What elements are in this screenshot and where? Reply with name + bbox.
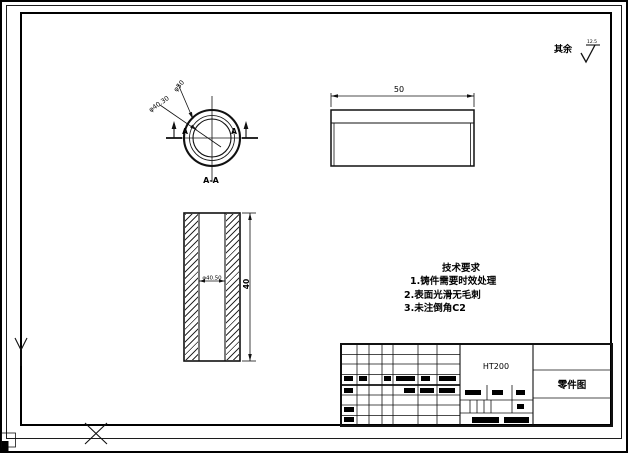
drawing-name: 零件图 bbox=[557, 379, 587, 391]
cutting-plane-right bbox=[242, 121, 258, 138]
width-dimension-label: 50 bbox=[394, 85, 404, 94]
roughness-check-icon bbox=[581, 45, 595, 62]
left-y-mark bbox=[15, 338, 27, 366]
bore-dimension: φ40.50 bbox=[199, 276, 225, 283]
front-view: φ40.50 40 bbox=[184, 213, 256, 361]
length-dimension: 40 bbox=[242, 213, 256, 361]
surface-roughness-note: 其余 12.5 bbox=[554, 39, 600, 62]
sheet-centering-marks bbox=[2, 338, 108, 451]
cut-arrowhead-right bbox=[244, 121, 249, 129]
roughness-value: 12.5 bbox=[587, 39, 597, 45]
inner-diameter-label: φ40.30 bbox=[147, 94, 170, 114]
rest-surfaces-label: 其余 bbox=[554, 43, 573, 55]
title-block-right: 零件图 bbox=[533, 370, 612, 398]
cutting-plane-left bbox=[166, 121, 182, 138]
outer-diameter-label: φ50 bbox=[172, 79, 186, 94]
front-view-outline bbox=[184, 213, 240, 361]
tech-requirements-title: 技术要求 bbox=[442, 262, 481, 274]
side-view-outline bbox=[331, 110, 474, 166]
drawing-linework: φ50 φ40.30 A A A-A 50 bbox=[0, 0, 628, 453]
bore-dimension-label: φ40.50 bbox=[202, 276, 222, 282]
material-value: HT200 bbox=[483, 362, 509, 371]
title-block: HT200 零件图 bbox=[341, 344, 612, 426]
tech-requirement-2: 2.表面光滑无毛刺 bbox=[404, 289, 481, 301]
cut-letter-right: A bbox=[231, 127, 237, 136]
corner-mark-fill bbox=[2, 441, 9, 451]
length-arrowhead-bottom bbox=[248, 354, 252, 361]
section-view: φ50 φ40.30 A A A-A bbox=[147, 79, 258, 185]
length-arrowhead-top bbox=[248, 213, 252, 220]
dim-arrowhead-right bbox=[467, 94, 474, 98]
title-block-left-grid bbox=[341, 344, 460, 426]
side-view-width-dimension: 50 bbox=[331, 85, 474, 107]
length-dimension-label: 40 bbox=[242, 279, 251, 289]
leader-arrowhead-outer bbox=[189, 112, 193, 119]
cut-arrowhead-left bbox=[172, 121, 177, 129]
dim-arrowhead-left bbox=[331, 94, 338, 98]
section-title: A-A bbox=[203, 176, 220, 185]
illegible-text-bars bbox=[344, 376, 529, 423]
drawing-sheet: φ50 φ40.30 A A A-A 50 bbox=[0, 0, 628, 453]
technical-requirements: 技术要求 1.铸件需要时效处理 2.表面光滑无毛刺 3.未注倒角C2 bbox=[404, 262, 497, 314]
tech-requirement-1: 1.铸件需要时效处理 bbox=[410, 275, 497, 287]
tech-requirement-3: 3.未注倒角C2 bbox=[404, 302, 466, 314]
bottom-x-mark bbox=[85, 423, 107, 444]
side-view: 50 bbox=[331, 85, 474, 166]
cut-letter-left: A bbox=[182, 127, 188, 136]
